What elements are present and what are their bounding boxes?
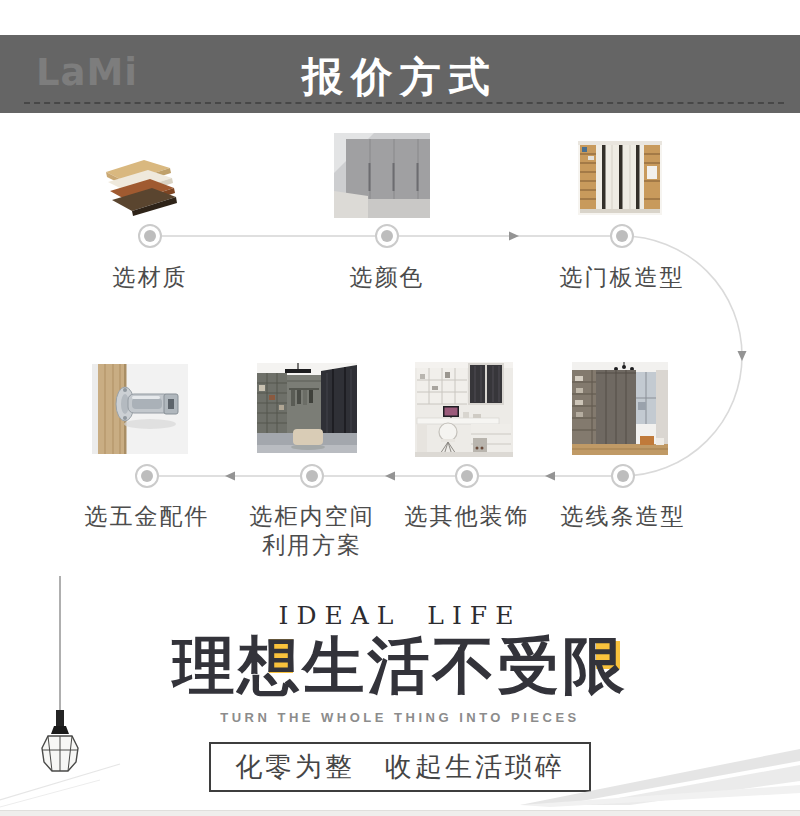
hero-eyebrow: IDEAL LIFE bbox=[0, 601, 800, 630]
hero-title-char-highlighted: 限 bbox=[563, 635, 628, 697]
arrow-left-icon bbox=[545, 472, 555, 481]
flow-node bbox=[455, 464, 479, 488]
closet-interior-photo bbox=[257, 363, 357, 453]
step-label-decor: 选其他装饰 bbox=[405, 502, 530, 531]
moulding-style-photo bbox=[572, 362, 668, 455]
material-samples-photo bbox=[100, 158, 178, 218]
arrow-left-icon bbox=[385, 472, 395, 481]
ribbon-decoration bbox=[520, 735, 800, 810]
hero-title-char: 理 bbox=[173, 635, 238, 697]
step-label-material: 选材质 bbox=[113, 263, 188, 292]
page-title: 报价方式 bbox=[0, 50, 800, 105]
flow-node bbox=[138, 224, 162, 248]
flow-node bbox=[375, 224, 399, 248]
arrow-right-icon bbox=[509, 232, 519, 241]
header-bar: LaMi 报价方式 bbox=[0, 35, 800, 113]
hero-title-char: 受 bbox=[498, 635, 563, 697]
arrow-left-icon bbox=[225, 472, 235, 481]
wardrobe-color-photo bbox=[334, 133, 430, 218]
flow-node bbox=[300, 464, 324, 488]
other-decor-photo bbox=[415, 362, 513, 457]
step-label-interior-plan: 选柜内空间 利用方案 bbox=[250, 502, 375, 560]
hinge-hardware-photo bbox=[92, 364, 188, 454]
flow-node bbox=[135, 464, 159, 488]
step-label-interior-plan-line1: 选柜内空间 bbox=[250, 502, 375, 531]
step-label-color: 选颜色 bbox=[350, 263, 425, 292]
hero-title-char: 活 bbox=[368, 635, 433, 697]
hero-title-char: 生 bbox=[303, 635, 368, 697]
step-label-hardware: 选五金配件 bbox=[85, 502, 210, 531]
hero-title: 理想生活不受限 bbox=[0, 630, 800, 701]
promo-page: LaMi 报价方式 bbox=[0, 0, 800, 816]
hero-subtitle: TURN THE WHOLE THING INTO PIECES bbox=[0, 710, 800, 725]
arrow-down-icon bbox=[738, 351, 747, 361]
step-label-interior-plan-line2: 利用方案 bbox=[250, 531, 375, 560]
footer-strip bbox=[0, 810, 800, 816]
hero-title-char-highlighted: 想 bbox=[238, 635, 303, 697]
faint-lines-decoration bbox=[0, 758, 140, 808]
hero-title-char: 不 bbox=[433, 635, 498, 697]
flow-node bbox=[610, 224, 634, 248]
dashed-divider bbox=[24, 102, 784, 104]
step-label-door-panel: 选门板造型 bbox=[560, 263, 685, 292]
door-panel-style-photo bbox=[578, 141, 662, 215]
step-label-moulding: 选线条造型 bbox=[561, 502, 686, 531]
flow-node bbox=[611, 464, 635, 488]
